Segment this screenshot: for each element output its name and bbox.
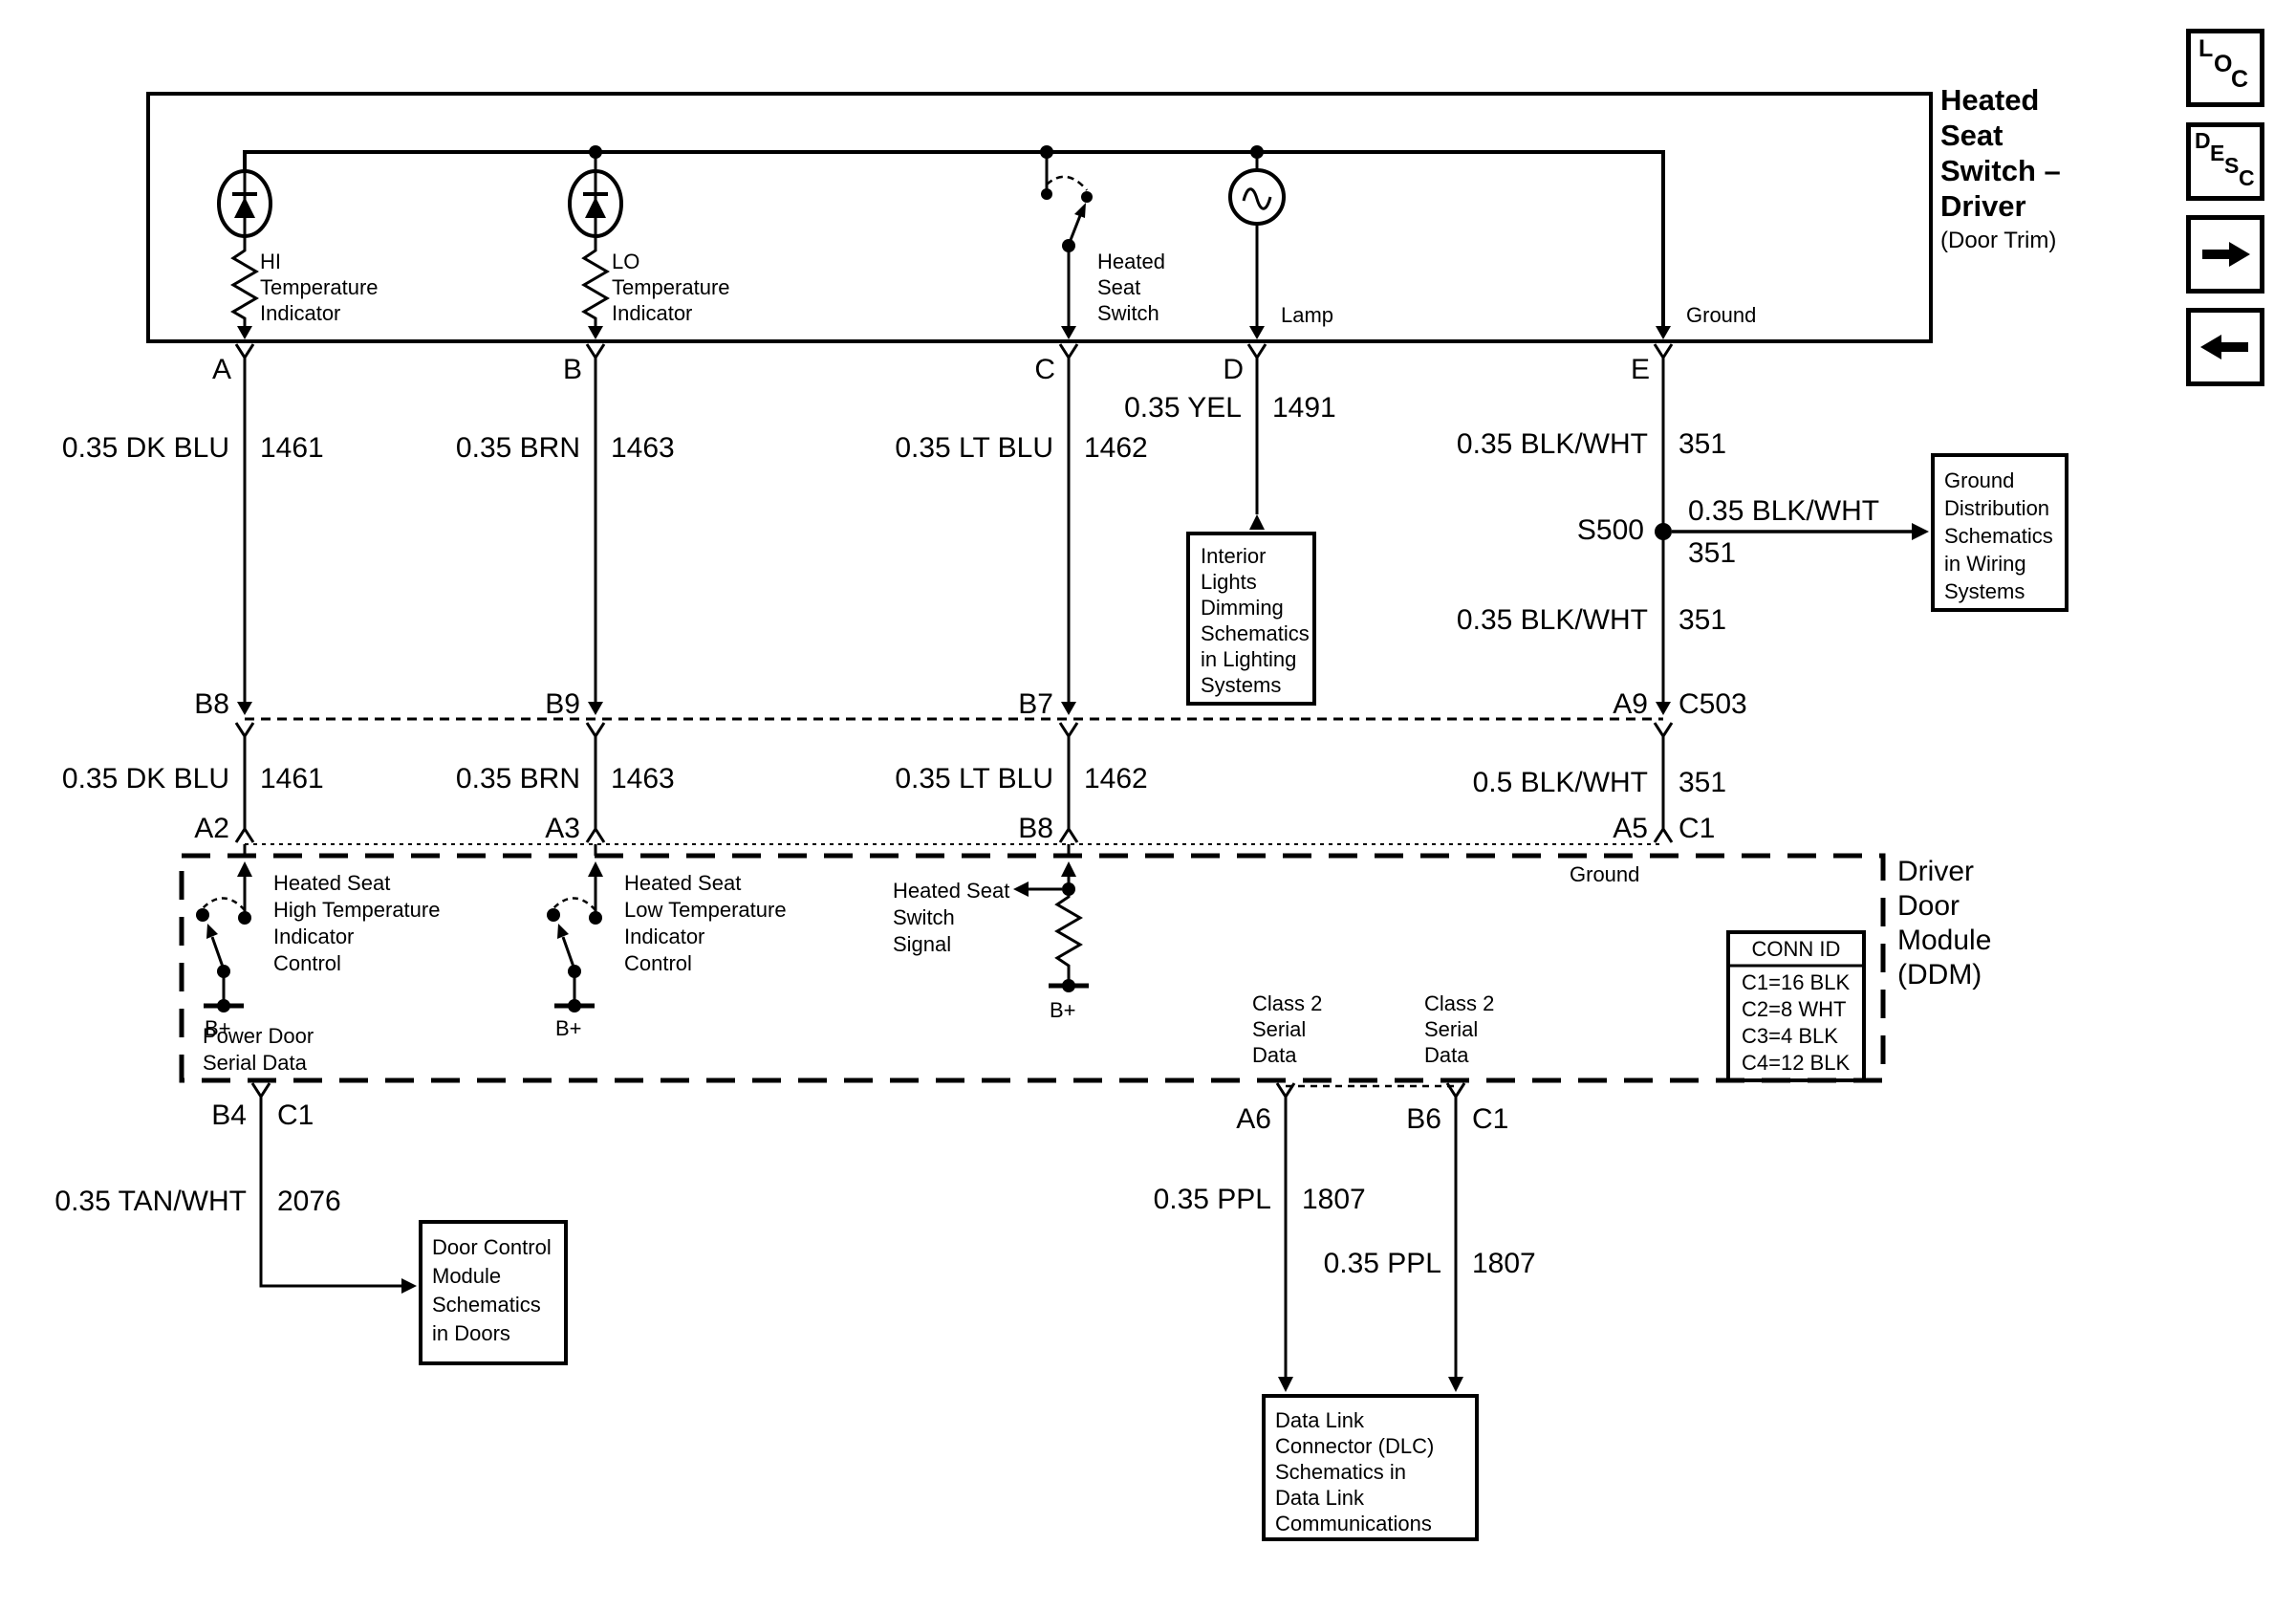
bplus-label-2: B+ [555,1015,582,1041]
wire-e-lower-color: 0.35 BLK/WHT [1457,604,1648,637]
loc-letter-o: O [2214,51,2232,78]
pin-b6-conn: C1 [1472,1103,1508,1136]
pin-c: C [1034,354,1055,386]
ddm-switch-signal-label: Heated Seat Switch Signal [893,878,1009,958]
page-subtitle: (Door Trim) [1940,228,2056,254]
bplus-label-3: B+ [1050,997,1076,1023]
wire-b-circuit: 1463 [611,432,675,465]
wire-c2-color: 0.35 LT BLU [895,763,1053,795]
ref-door-control-module[interactable]: Door Control Module Schematics in Doors [432,1233,552,1348]
c503-pin-b9: B9 [545,688,580,721]
wire-e-circuit: 351 [1679,428,1726,461]
c503-pin-b8: B8 [194,688,229,721]
wire-a-color: 0.35 DK BLU [62,432,229,465]
s500-label: S500 [1577,514,1644,547]
ground-label: Ground [1686,302,1756,328]
wire-e-lower-circuit: 351 [1679,604,1726,637]
power-door-serial-label: Power Door Serial Data [203,1023,314,1077]
pin-b4-conn: C1 [277,1099,314,1132]
wire-c2-circuit: 1462 [1084,763,1148,795]
hi-indicator-label: HI Temperature Indicator [260,249,379,326]
conn-id-rows: C1=16 BLK C2=8 WHT C3=4 BLK C4=12 BLK [1742,969,1850,1077]
s500-branch-color: 0.35 BLK/WHT [1688,495,1879,528]
back-button[interactable] [2186,308,2264,386]
loc-button[interactable]: L O C [2186,29,2264,107]
page-title: Heated Seat Switch – Driver [1940,82,2061,224]
wire-b2-color: 0.35 BRN [456,763,580,795]
forward-button[interactable] [2186,215,2264,294]
ddm-lo-control-switch-icon [547,861,603,1012]
lamp-label: Lamp [1281,302,1333,328]
desc-letter-e: E [2210,141,2224,166]
c1-pin-a2: A2 [194,813,229,845]
c1-pin-a5: A5 [1613,813,1648,845]
wire-c-color: 0.35 LT BLU [895,432,1053,465]
wire-b6-color: 0.35 PPL [1324,1248,1441,1280]
pin-b4: B4 [211,1099,247,1132]
pin-a: A [212,354,231,386]
wire-b2-circuit: 1463 [611,763,675,795]
loc-letter-l: L [2199,35,2213,63]
ref-data-link-connector[interactable]: Data Link Connector (DLC) Schematics in … [1275,1407,1434,1536]
wire-d-color: 0.35 YEL [1124,392,1242,425]
ref-interior-lights-dimming[interactable]: Interior Lights Dimming Schematics in Li… [1201,543,1310,698]
harness-wires-upper [245,358,1663,702]
pin-d: D [1223,354,1244,386]
wire-a2-circuit: 1461 [260,763,324,795]
connector-c503-row [236,702,1672,736]
pin-b6: B6 [1406,1103,1441,1136]
pin-a6: A6 [1236,1103,1271,1136]
interior-lights-ref-arrow [1249,514,1265,530]
c503-pin-a9: A9 [1613,688,1648,721]
ddm-exit-forks [252,1083,1464,1097]
box-bottom-connector-forks [236,344,1672,358]
connector-c1-row [236,829,1672,856]
wire-a2-color: 0.35 DK BLU [62,763,229,795]
lamp-icon [1230,152,1284,339]
switch-label: Heated Seat Switch [1097,249,1165,326]
c1-name: C1 [1679,813,1715,845]
desc-button[interactable]: D E S C [2186,122,2264,201]
wire-b-color: 0.35 BRN [456,432,580,465]
forward-arrow-icon [2191,220,2260,289]
wire-b6-circuit: 1807 [1472,1248,1536,1280]
ground-leg-arrow [1656,326,1671,339]
wire-b4-circuit: 2076 [277,1186,341,1218]
ref-ground-distribution[interactable]: Ground Distribution Schematics in Wiring… [1944,467,2053,605]
c503-name: C503 [1679,688,1747,721]
wire-e2-circuit: 351 [1679,767,1726,799]
desc-letter-s: S [2224,153,2239,179]
ddm-lo-control-label: Heated Seat Low Temperature Indicator Co… [624,870,787,977]
desc-letter-d: D [2195,128,2211,154]
class2-label-b: Class 2 Serial Data [1424,991,1494,1068]
heated-seat-switch-box [148,94,1931,341]
wire-a-circuit: 1461 [260,432,324,465]
class2-serial-wires [1278,1097,1463,1392]
class2-label-a: Class 2 Serial Data [1252,991,1322,1068]
back-arrow-icon [2191,313,2260,381]
heated-seat-switch-icon [1041,152,1093,339]
c1-pin-b8: B8 [1018,813,1053,845]
wire-e2-color: 0.5 BLK/WHT [1473,767,1648,799]
wire-b4-color: 0.35 TAN/WHT [54,1186,247,1218]
c1-pin-a3: A3 [545,813,580,845]
wire-e-color: 0.35 BLK/WHT [1457,428,1648,461]
wire-c-circuit: 1462 [1084,432,1148,465]
conn-id-header: CONN ID [1728,936,1864,962]
c503-pin-b7: B7 [1018,688,1053,721]
loc-letter-c: C [2231,66,2248,94]
wire-d-circuit: 1491 [1272,392,1336,425]
wiring-diagram-page: L O C D E S C Heated Seat Switch – Drive… [0,0,2296,1611]
wire-a6-color: 0.35 PPL [1154,1184,1271,1216]
ddm-hi-control-label: Heated Seat High Temperature Indicator C… [273,870,440,977]
pin-e: E [1631,354,1650,386]
ddm-hi-control-switch-icon [196,861,252,1012]
wire-a6-circuit: 1807 [1302,1184,1366,1216]
lo-indicator-label: LO Temperature Indicator [612,249,730,326]
ddm-label: Driver Door Module (DDM) [1897,855,1991,992]
ddm-ground-label: Ground [1570,861,1639,887]
pin-b: B [563,354,582,386]
desc-letter-c: C [2239,165,2255,191]
ddm-switch-signal-resistor-icon [1013,861,1089,992]
s500-branch-circuit: 351 [1688,537,1736,570]
